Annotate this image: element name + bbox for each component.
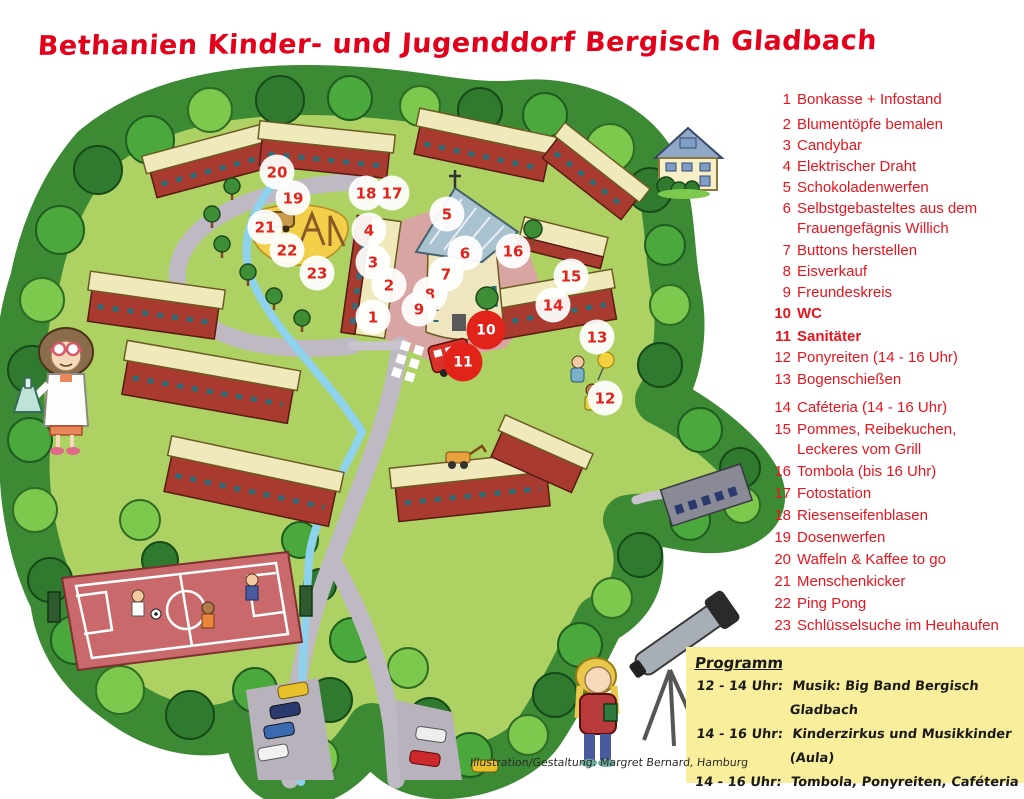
- map-marker-1: 1: [356, 300, 391, 335]
- legend-item-2: 2Blumentöpfe bemalen: [770, 115, 1022, 135]
- legend-list: 1Bonkasse + Infostand2Blumentöpfe bemale…: [770, 90, 1022, 637]
- legend-item-number: 16: [770, 462, 791, 482]
- legend-item-16: 16Tombola (bis 16 Uhr): [770, 462, 1022, 482]
- legend-item-number: 6: [770, 199, 791, 239]
- legend-item-8: 8Eisverkauf: [770, 262, 1022, 282]
- program-text: Musik: Shine Buteo (Kirchplatz): [790, 795, 1024, 799]
- legend-item-label: Eisverkauf: [797, 262, 867, 282]
- credit-line: Illustration/Gestaltung: Margret Bernard…: [469, 756, 748, 769]
- legend-item-15: 15Pommes, Reibekuchen,Leckeres vom Grill: [770, 420, 1022, 460]
- program-row-3: 14 - 16 Uhr:Tombola, Ponyreiten, Caféter…: [694, 771, 1024, 795]
- map-marker-11: 11: [444, 343, 483, 382]
- legend-item-5: 5Schokoladenwerfen: [770, 178, 1022, 198]
- map-marker-23: 23: [300, 256, 335, 291]
- legend-item-10: 10WC: [770, 304, 1022, 324]
- legend-item-1: 1Bonkasse + Infostand: [770, 90, 1022, 110]
- program-text: Kinderzirkus und Musikkinder (Aula): [788, 723, 1024, 771]
- map-marker-15: 15: [554, 259, 589, 294]
- program-row-4: 16:30 Uhr:Musik: Shine Buteo (Kirchplatz…: [694, 795, 1024, 799]
- legend-item-9: 9Freundeskreis: [770, 283, 1022, 303]
- program-time: 14 - 16 Uhr:: [694, 771, 793, 795]
- legend-item-20: 20Waffeln & Kaffee to go: [770, 550, 1022, 570]
- program-title: Programm: [694, 654, 784, 672]
- map-marker-20: 20: [260, 155, 295, 190]
- poster: Bethanien Kinder- und Jugenddorf Bergisc…: [0, 0, 1024, 799]
- legend-item-number: 4: [770, 157, 791, 177]
- map-marker-4: 4: [352, 213, 387, 248]
- map-marker-13: 13: [580, 320, 615, 355]
- legend-item-6: 6Selbstgebasteltes aus demFrauengefägnis…: [770, 199, 1022, 239]
- legend-item-label: Freundeskreis: [797, 283, 892, 303]
- legend-item-label: Schlüsselsuche im Heuhaufen: [797, 616, 999, 636]
- legend-item-number: 21: [770, 572, 791, 592]
- legend-item-label: Tombola (bis 16 Uhr): [797, 462, 936, 482]
- legend-item-number: 9: [770, 283, 791, 303]
- legend-item-12: 12Ponyreiten (14 - 16 Uhr): [770, 348, 1022, 368]
- legend-item-19: 19Dosenwerfen: [770, 528, 1022, 548]
- legend-item-17: 17Fotostation: [770, 484, 1022, 504]
- legend-item-label: Fotostation: [797, 484, 871, 504]
- legend-item-label: Bogenschießen: [797, 370, 901, 390]
- legend-item-18: 18Riesenseifenblasen: [770, 506, 1022, 526]
- legend-item-number: 19: [770, 528, 791, 548]
- legend-item-label: Blumentöpfe bemalen: [797, 115, 943, 135]
- map-marker-12: 12: [588, 381, 623, 416]
- program-text: Musik: Big Band Bergisch Gladbach: [788, 675, 1024, 723]
- legend-item-label: Dosenwerfen: [797, 528, 885, 548]
- map-marker-10: 10: [467, 311, 506, 350]
- legend-item-number: 5: [770, 178, 791, 198]
- legend-item-22: 22Ping Pong: [770, 594, 1022, 614]
- legend-item-number: 23: [770, 616, 791, 636]
- legend-item-number: 12: [770, 348, 791, 368]
- legend-item-number: 17: [770, 484, 791, 504]
- legend-item-label: Candybar: [797, 136, 862, 156]
- program-row-1: 12 - 14 Uhr:Musik: Big Band Bergisch Gla…: [692, 675, 1024, 723]
- legend-item-label: Bonkasse + Infostand: [797, 90, 942, 110]
- program-text: Tombola, Ponyreiten, Caféteria: [790, 771, 1020, 795]
- legend-item-label: Caféteria (14 - 16 Uhr): [797, 398, 947, 418]
- legend-item-number: 3: [770, 136, 791, 156]
- legend-item-number: 7: [770, 241, 791, 261]
- legend-item-label: Riesenseifenblasen: [797, 506, 928, 526]
- program-rows: 12 - 14 Uhr:Musik: Big Band Bergisch Gla…: [695, 675, 1024, 799]
- legend-item-11: 11Sanitäter: [770, 327, 1022, 347]
- map-marker-18: 18: [349, 176, 384, 211]
- program-time: 12 - 14 Uhr:: [692, 675, 793, 723]
- legend-item-label: Selbstgebasteltes aus demFrauengefägnis …: [797, 199, 977, 239]
- legend-item-label: Elektrischer Draht: [797, 157, 916, 177]
- legend-item-label: WC: [797, 304, 822, 324]
- legend-item-label: Ping Pong: [797, 594, 866, 614]
- legend-item-number: 18: [770, 506, 791, 526]
- legend-item-number: 13: [770, 370, 791, 390]
- legend-item-number: 2: [770, 115, 791, 135]
- legend-item-number: 14: [770, 398, 791, 418]
- legend-item-4: 4Elektrischer Draht: [770, 157, 1022, 177]
- legend-item-14: 14Caféteria (14 - 16 Uhr): [770, 398, 1022, 418]
- legend-item-number: 22: [770, 594, 791, 614]
- legend-item-23: 23Schlüsselsuche im Heuhaufen: [770, 616, 1022, 636]
- legend-item-label: Sanitäter: [797, 327, 861, 347]
- legend-item-13: 13Bogenschießen: [770, 370, 1022, 390]
- program-time: 16:30 Uhr:: [694, 795, 793, 799]
- legend-item-number: 1: [770, 90, 791, 110]
- legend-item-label: Ponyreiten (14 - 16 Uhr): [797, 348, 958, 368]
- legend-item-7: 7Buttons herstellen: [770, 241, 1022, 261]
- legend-item-number: 20: [770, 550, 791, 570]
- legend-item-label: Waffeln & Kaffee to go: [797, 550, 946, 570]
- legend-item-label: Buttons herstellen: [797, 241, 917, 261]
- map-marker-16: 16: [496, 234, 531, 269]
- legend-item-3: 3Candybar: [770, 136, 1022, 156]
- map-marker-9: 9: [402, 292, 437, 327]
- legend-item-label: Menschenkicker: [797, 572, 905, 592]
- map-marker-5: 5: [430, 197, 465, 232]
- legend-item-number: 11: [770, 327, 791, 347]
- legend-item-21: 21Menschenkicker: [770, 572, 1022, 592]
- legend-item-number: 10: [770, 304, 791, 324]
- map-marker-22: 22: [270, 233, 305, 268]
- legend-item-label: Schokoladenwerfen: [797, 178, 929, 198]
- legend-item-number: 15: [770, 420, 791, 460]
- map-marker-3: 3: [356, 245, 391, 280]
- legend-item-label: Pommes, Reibekuchen,Leckeres vom Grill: [797, 420, 956, 460]
- legend-item-number: 8: [770, 262, 791, 282]
